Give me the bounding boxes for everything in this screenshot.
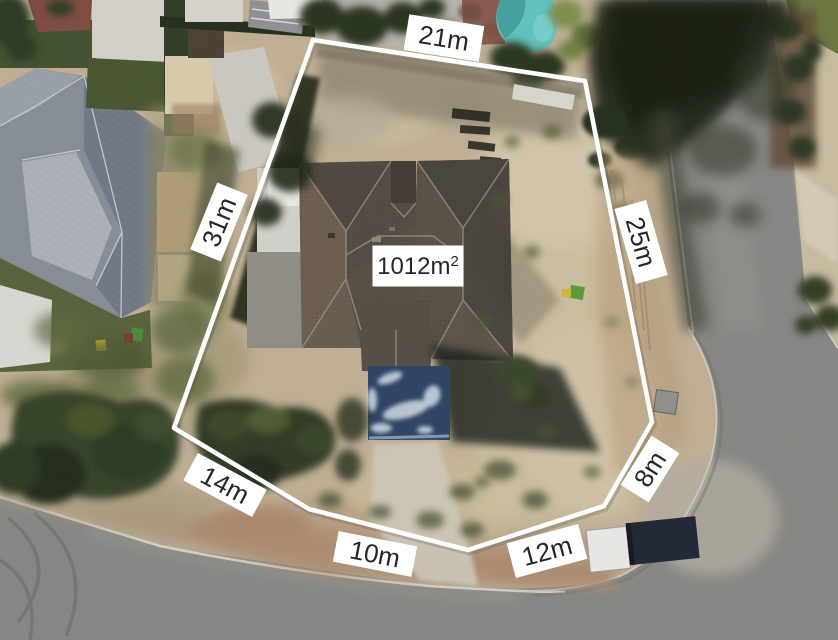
svg-text:1012m2: 1012m2 <box>377 253 459 280</box>
